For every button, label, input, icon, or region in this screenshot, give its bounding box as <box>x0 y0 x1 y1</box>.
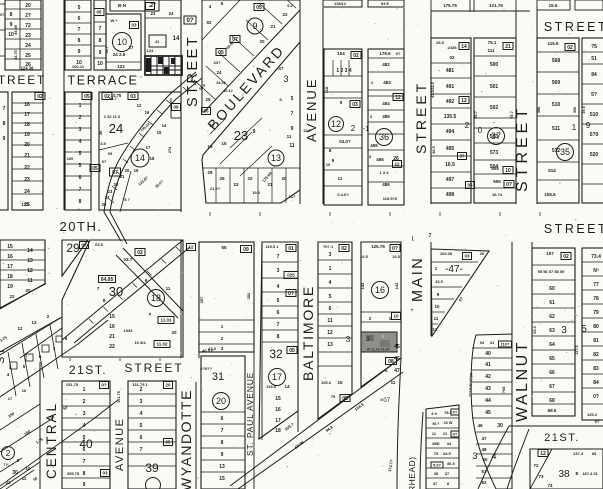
svg-text:47: 47 <box>394 368 400 374</box>
svg-text:2?0??: 2?0?? <box>200 366 212 371</box>
svg-text:30: 30 <box>12 470 18 476</box>
svg-text:55: 55 <box>221 245 227 250</box>
svg-text:1934: 1934 <box>124 328 134 333</box>
svg-text:482: 482 <box>382 62 390 67</box>
svg-text:12: 12 <box>17 326 23 331</box>
svg-text:38: 38 <box>558 469 570 480</box>
svg-text:100: 100 <box>67 156 74 161</box>
svg-text:118/12: 118/12 <box>334 1 347 6</box>
svg-text:9: 9 <box>221 452 224 458</box>
svg-text:19: 19 <box>24 132 30 138</box>
svg-text:5: 5 <box>277 298 280 304</box>
svg-text:29.7: 29.7 <box>474 111 478 118</box>
svg-text:02: 02 <box>449 55 455 60</box>
svg-text:2: 2 <box>83 399 86 405</box>
svg-text:179.6: 179.6 <box>379 51 391 56</box>
svg-text:25: 25 <box>25 53 31 59</box>
svg-text:13: 13 <box>219 464 225 470</box>
svg-text:69.5: 69.5 <box>548 408 557 413</box>
svg-text:17: 17 <box>24 112 30 118</box>
svg-text:13: 13 <box>27 258 33 264</box>
svg-text:23: 23 <box>234 128 248 143</box>
svg-text:3: 3 <box>140 399 143 405</box>
svg-text:37: 37 <box>433 481 438 486</box>
svg-text:157: 157 <box>546 251 554 256</box>
svg-text:WALNUT: WALNUT <box>514 340 531 422</box>
svg-text:9: 9 <box>99 50 102 56</box>
svg-text:8: 8 <box>79 199 82 205</box>
svg-text:0.4.0?: 0.4.0? <box>337 192 349 197</box>
svg-text:5.0?: 5.0? <box>433 462 442 467</box>
svg-text:BALTIMORE: BALTIMORE <box>300 285 316 381</box>
svg-text:40: 40 <box>485 351 491 357</box>
svg-text:15: 15 <box>221 141 227 146</box>
svg-text:21?: 21? <box>289 194 296 199</box>
svg-text:11: 11 <box>27 278 33 284</box>
svg-text:151.75: 151.75 <box>66 382 79 387</box>
svg-text:02: 02 <box>567 45 573 51</box>
svg-text:23 W: 23 W <box>444 421 453 425</box>
svg-text:502: 502 <box>490 105 499 111</box>
svg-text:7: 7 <box>277 322 280 328</box>
svg-text:22: 22 <box>282 12 288 17</box>
svg-text:9.2: 9.2 <box>287 3 293 8</box>
svg-text:485: 485 <box>382 114 390 119</box>
svg-text:×07: ×07 <box>380 398 391 404</box>
svg-text:02: 02 <box>563 254 569 260</box>
svg-text:6: 6 <box>79 175 82 181</box>
svg-text:5: 5 <box>140 423 143 429</box>
svg-text:43: 43 <box>485 386 491 392</box>
svg-text:355.75: 355.75 <box>67 471 80 476</box>
svg-text:2: 2 <box>79 115 82 121</box>
svg-text:73: 73 <box>538 474 544 479</box>
svg-text:0?: 0? <box>0 12 5 17</box>
svg-text:AVENUE: AVENUE <box>304 78 319 143</box>
svg-text:100-11: 100-11 <box>72 64 85 69</box>
svg-text:63.5: 63.5 <box>95 242 104 247</box>
svg-text:01: 01 <box>288 246 294 252</box>
svg-text:03: 03 <box>464 254 470 259</box>
svg-text:-47-: -47- <box>445 264 463 275</box>
svg-text:7: 7 <box>78 27 81 33</box>
svg-text:7: 7 <box>79 187 82 193</box>
svg-text:9: 9 <box>83 482 86 488</box>
svg-text:64: 64 <box>549 342 555 348</box>
svg-text:497: 497 <box>446 177 455 183</box>
svg-text:10: 10 <box>117 37 127 47</box>
svg-text:0?: 0? <box>288 291 294 297</box>
svg-text:73.4: 73.4 <box>591 254 601 260</box>
svg-text:55 56 57 58 59: 55 56 57 58 59 <box>538 269 565 274</box>
svg-text:352: 352 <box>246 292 251 299</box>
svg-text:27: 27 <box>150 3 156 9</box>
svg-text:5?: 5? <box>591 92 597 98</box>
svg-text:8: 8 <box>10 12 13 18</box>
svg-text:30: 30 <box>497 423 503 429</box>
svg-text:05: 05 <box>108 151 113 156</box>
svg-text:72: 72 <box>533 463 539 468</box>
svg-text:15.5: 15.5 <box>549 3 558 8</box>
svg-text:04.05: 04.05 <box>101 277 114 283</box>
svg-text:7: 7 <box>83 459 86 465</box>
svg-text:357: 357 <box>199 296 204 303</box>
svg-text:486: 486 <box>382 182 390 187</box>
svg-text:2: 2 <box>140 387 143 393</box>
svg-text:16: 16 <box>24 102 30 108</box>
svg-text:11: 11 <box>287 134 292 139</box>
svg-text:31: 31 <box>212 371 224 383</box>
svg-text:65.5: 65.5 <box>533 326 537 333</box>
svg-text:02: 02 <box>37 94 43 100</box>
svg-text:21: 21 <box>120 174 125 179</box>
svg-text:118: 118 <box>324 86 329 93</box>
svg-text:17: 17 <box>209 123 215 128</box>
svg-text:75.1: 75.1 <box>488 40 497 45</box>
svg-text:29: 29 <box>66 241 80 255</box>
svg-text:42: 42 <box>485 374 491 380</box>
svg-text:03: 03 <box>352 102 358 108</box>
svg-text:11: 11 <box>289 143 295 149</box>
svg-text:19: 19 <box>7 284 13 290</box>
svg-text:B·H: B·H <box>118 3 126 8</box>
svg-text:119.5 1: 119.5 1 <box>265 244 279 249</box>
svg-text:20: 20 <box>281 176 287 181</box>
svg-text:19.3: 19.3 <box>252 190 261 195</box>
svg-text:498: 498 <box>446 192 455 198</box>
svg-text:8: 8 <box>277 334 280 340</box>
svg-text:12: 12 <box>27 268 33 274</box>
svg-text:7: 7 <box>291 111 294 117</box>
svg-text:137.4: 137.4 <box>573 451 584 456</box>
svg-text:TERRACE: TERRACE <box>68 74 139 88</box>
svg-text:09: 09 <box>173 105 179 110</box>
svg-text:510: 510 <box>590 112 599 118</box>
svg-text:514: 514 <box>548 168 556 173</box>
svg-text:02: 02 <box>137 250 143 256</box>
svg-text:5?0: 5?0 <box>590 132 599 138</box>
svg-text:0?: 0? <box>453 431 458 436</box>
svg-text:M.?: M.? <box>433 421 440 426</box>
svg-text:STREET: STREET <box>544 20 603 34</box>
svg-text:16: 16 <box>375 285 385 295</box>
svg-text:4: 4 <box>79 139 82 145</box>
svg-text:17: 17 <box>275 418 281 424</box>
svg-text:274: 274 <box>168 146 172 153</box>
svg-text:84: 84 <box>593 380 599 386</box>
svg-text:6: 6 <box>329 306 332 312</box>
svg-text:80: 80 <box>593 324 599 330</box>
svg-text:03: 03 <box>102 471 108 476</box>
svg-text:569: 569 <box>552 80 561 86</box>
svg-text:505: 505 <box>491 166 499 171</box>
svg-text:12: 12 <box>327 330 333 336</box>
svg-text:9: 9 <box>253 129 256 135</box>
svg-text:05: 05 <box>256 5 262 11</box>
svg-text:501: 501 <box>490 84 499 90</box>
svg-text:17: 17 <box>7 264 13 270</box>
svg-text:6: 6 <box>221 416 224 422</box>
svg-text:111: 111 <box>487 48 495 53</box>
svg-text:24: 24 <box>109 121 123 136</box>
svg-text:RHEAD): RHEAD) <box>407 456 417 489</box>
svg-text:19.5: 19.5 <box>582 106 586 113</box>
svg-text:12: 12 <box>540 451 546 457</box>
svg-text:34: 34 <box>447 441 452 446</box>
svg-text:83: 83 <box>593 366 599 372</box>
svg-text:81: 81 <box>593 338 599 344</box>
svg-text:32: 32 <box>269 347 283 361</box>
svg-text:63: 63 <box>549 328 555 334</box>
svg-text:1: 1 <box>79 103 82 109</box>
svg-text:1: 1 <box>329 266 332 272</box>
svg-text:124: 124 <box>147 48 154 53</box>
svg-text:7: 7 <box>99 26 102 32</box>
svg-text:68: 68 <box>549 398 555 404</box>
svg-text:22: 22 <box>24 165 30 171</box>
svg-text:4: 4 <box>83 423 86 429</box>
svg-text:506: 506 <box>493 179 501 184</box>
svg-text:3: 3 <box>329 252 332 258</box>
svg-text:11: 11 <box>327 318 333 324</box>
svg-text:5: 5 <box>329 294 332 300</box>
svg-text:16: 16 <box>145 110 150 115</box>
svg-text:17: 17 <box>8 396 13 401</box>
svg-text:24 2.5: 24 2.5 <box>113 52 126 57</box>
svg-text:483: 483 <box>383 80 391 85</box>
svg-text:484: 484 <box>382 101 390 106</box>
svg-text:105.3: 105.3 <box>321 380 332 385</box>
svg-text:4?: 4? <box>278 66 284 71</box>
svg-text:48: 48 <box>481 447 487 452</box>
svg-text:05: 05 <box>165 440 171 445</box>
svg-text:2: 2 <box>351 124 356 133</box>
svg-text:9: 9 <box>78 49 81 55</box>
svg-text:11.01: 11.01 <box>160 318 172 323</box>
svg-text:0?: 0? <box>186 18 193 24</box>
svg-text:35: 35 <box>434 471 439 476</box>
svg-text:123: 123 <box>21 202 29 207</box>
svg-text:14: 14 <box>162 123 167 128</box>
svg-text:10: 10 <box>326 162 331 167</box>
svg-text:24: 24 <box>24 189 30 195</box>
svg-text:3: 3 <box>561 325 567 336</box>
svg-text:74: 74 <box>547 483 553 488</box>
svg-text:9: 9 <box>3 136 6 142</box>
svg-text:12: 12 <box>331 119 341 129</box>
svg-text:21ST.: 21ST. <box>544 432 580 444</box>
svg-text:STREET: STREET <box>185 35 201 107</box>
svg-text:52: 52 <box>481 480 487 485</box>
svg-text:2?: 2? <box>25 13 31 19</box>
svg-text:09: 09 <box>243 247 249 253</box>
svg-text:511: 511 <box>552 126 560 132</box>
svg-text:2: 2 <box>6 449 11 458</box>
svg-text:46: 46 <box>477 423 483 428</box>
svg-text:0?: 0? <box>593 394 599 400</box>
svg-text:79: 79 <box>593 310 599 316</box>
svg-text:520: 520 <box>590 152 599 158</box>
svg-text:21ST.: 21ST. <box>69 363 107 377</box>
svg-text:8: 8 <box>78 38 81 44</box>
svg-text:21: 21 <box>270 24 276 29</box>
svg-text:1: 1 <box>572 123 577 132</box>
svg-text:110?: 110? <box>501 341 510 346</box>
svg-text:WYANDOTTE: WYANDOTTE <box>178 389 194 489</box>
svg-text:7: 7 <box>140 447 143 453</box>
svg-text:0?: 0? <box>392 246 398 252</box>
svg-text:13: 13 <box>271 153 281 163</box>
svg-text:11: 11 <box>338 176 343 181</box>
svg-text:15: 15 <box>275 396 281 402</box>
svg-text:143: 143 <box>360 282 365 289</box>
svg-text:14: 14 <box>27 248 33 254</box>
svg-text:510: 510 <box>552 102 561 108</box>
svg-text:0?: 0? <box>506 182 512 188</box>
svg-text:⌊: ⌊ <box>412 236 414 242</box>
svg-text:51: 51 <box>591 56 597 62</box>
svg-text:50: 50 <box>482 457 488 462</box>
svg-text:7: 7 <box>277 254 280 260</box>
svg-text:25: 25 <box>102 202 107 207</box>
svg-text:4: 4 <box>329 280 332 286</box>
svg-text:75: 75 <box>331 394 336 399</box>
svg-text:7: 7 <box>3 106 6 112</box>
svg-text:41: 41 <box>155 39 160 44</box>
svg-text:-1: -1 <box>363 126 369 133</box>
svg-text:122: 122 <box>117 64 125 69</box>
svg-text:0?: 0? <box>101 383 107 388</box>
svg-text:20: 20 <box>480 251 485 256</box>
svg-text:14: 14 <box>135 153 145 163</box>
svg-text:16: 16 <box>275 407 281 413</box>
svg-text:05: 05 <box>96 10 102 15</box>
svg-text:4: 4 <box>491 451 496 461</box>
svg-text:E: E <box>575 471 578 476</box>
svg-text:8: 8 <box>3 121 6 127</box>
svg-text:0?: 0? <box>595 419 600 424</box>
svg-text:93 E: 93 E <box>381 1 390 6</box>
svg-text:121.75: 121.75 <box>489 3 503 8</box>
svg-text:124 36: 124 36 <box>21 66 34 71</box>
svg-text:2 32 11 6: 2 32 11 6 <box>104 114 121 119</box>
svg-text:25: 25 <box>219 176 225 181</box>
svg-text:65: 65 <box>549 356 555 362</box>
svg-text:455: 455 <box>370 143 378 148</box>
svg-text:24: 24 <box>105 195 110 200</box>
svg-text:75: 75 <box>434 451 439 456</box>
svg-text:6: 6 <box>277 310 280 316</box>
svg-text:20: 20 <box>25 3 31 9</box>
svg-text:119.5?6: 119.5?6 <box>383 196 398 201</box>
svg-text:492: 492 <box>446 99 455 105</box>
svg-text:6: 6 <box>140 435 143 441</box>
svg-text:4: 4 <box>140 411 143 417</box>
svg-text:5.: 5. <box>279 97 282 102</box>
svg-text:20: 20 <box>171 330 177 335</box>
svg-text:7: 7 <box>429 233 432 239</box>
svg-text:24: 24 <box>25 43 31 49</box>
svg-text:115.6: 115.6 <box>547 41 559 46</box>
svg-text:17: 17 <box>146 145 151 150</box>
svg-text:20: 20 <box>24 142 30 148</box>
svg-text:20: 20 <box>165 383 171 388</box>
svg-text:05: 05 <box>289 348 295 354</box>
svg-text:9?: 9? <box>102 159 107 164</box>
svg-text:19 3/4: 19 3/4 <box>134 340 146 345</box>
svg-text:16.7: 16.7 <box>105 47 109 54</box>
svg-text:494: 494 <box>446 129 455 135</box>
svg-text:21: 21 <box>505 44 511 50</box>
svg-text:″: ″ <box>140 75 142 80</box>
svg-text:W 11.03 91.34: W 11.03 91.34 <box>367 348 390 352</box>
svg-text:54.7: 54.7 <box>109 97 116 101</box>
svg-text:23: 23 <box>24 177 30 183</box>
svg-text:03: 03 <box>130 94 136 100</box>
svg-text:20: 20 <box>125 168 130 173</box>
svg-text:104: 104 <box>337 51 345 56</box>
svg-text:481: 481 <box>446 68 455 74</box>
svg-text:07: 07 <box>112 170 118 176</box>
svg-text:2: 2 <box>465 121 470 130</box>
svg-text:15: 15 <box>219 476 225 482</box>
svg-text:15: 15 <box>109 314 115 320</box>
svg-text:175.75: 175.75 <box>443 3 457 8</box>
svg-text:10: 10 <box>434 304 440 309</box>
svg-text:21: 21 <box>267 182 273 187</box>
svg-text:W.?: W.? <box>110 18 118 23</box>
svg-text:025: 025 <box>287 273 295 278</box>
svg-text:129.2: 129.2 <box>587 412 598 417</box>
svg-text:0?: 0? <box>453 409 458 414</box>
svg-text:380: 380 <box>537 107 541 113</box>
svg-text:14: 14 <box>461 44 467 50</box>
svg-text:3: 3 <box>283 74 288 84</box>
svg-text:125.75: 125.75 <box>371 244 385 249</box>
svg-text:94: 94 <box>480 340 485 345</box>
svg-text:66: 66 <box>549 370 555 376</box>
svg-text:5: 5 <box>79 151 82 157</box>
svg-text:×: × <box>149 312 152 318</box>
svg-text:20: 20 <box>259 39 265 44</box>
svg-text:MAIN: MAIN <box>410 256 426 302</box>
svg-text:61: 61 <box>549 300 555 306</box>
svg-text:19: 19 <box>207 144 213 149</box>
svg-text:15: 15 <box>157 130 162 135</box>
svg-text:04.0?: 04.0? <box>339 139 351 144</box>
svg-text:STREET: STREET <box>413 81 429 154</box>
svg-text:23: 23 <box>151 11 156 16</box>
svg-text:8: 8 <box>83 471 86 477</box>
svg-text:0?: 0? <box>396 51 401 56</box>
svg-text:0: 0 <box>478 126 483 135</box>
svg-text:5: 5 <box>78 5 81 11</box>
svg-text:27: 27 <box>128 45 134 50</box>
svg-text:10: 10 <box>97 61 103 67</box>
svg-text:9: 9 <box>291 126 294 132</box>
svg-text:21.0?: 21.0? <box>210 186 221 191</box>
svg-text:16: 16 <box>109 324 115 330</box>
svg-text:16.5: 16.5 <box>445 162 455 168</box>
svg-text:41: 41 <box>485 362 491 368</box>
svg-text:465: 465 <box>376 157 384 162</box>
svg-text:11: 11 <box>166 286 171 291</box>
svg-text:117.5: 117.5 <box>575 345 579 354</box>
svg-text:25: 25 <box>205 97 211 102</box>
svg-text:STREET: STREET <box>124 361 183 375</box>
svg-text:44.75: 44.75 <box>14 50 18 60</box>
svg-text:16.5: 16.5 <box>360 254 369 259</box>
